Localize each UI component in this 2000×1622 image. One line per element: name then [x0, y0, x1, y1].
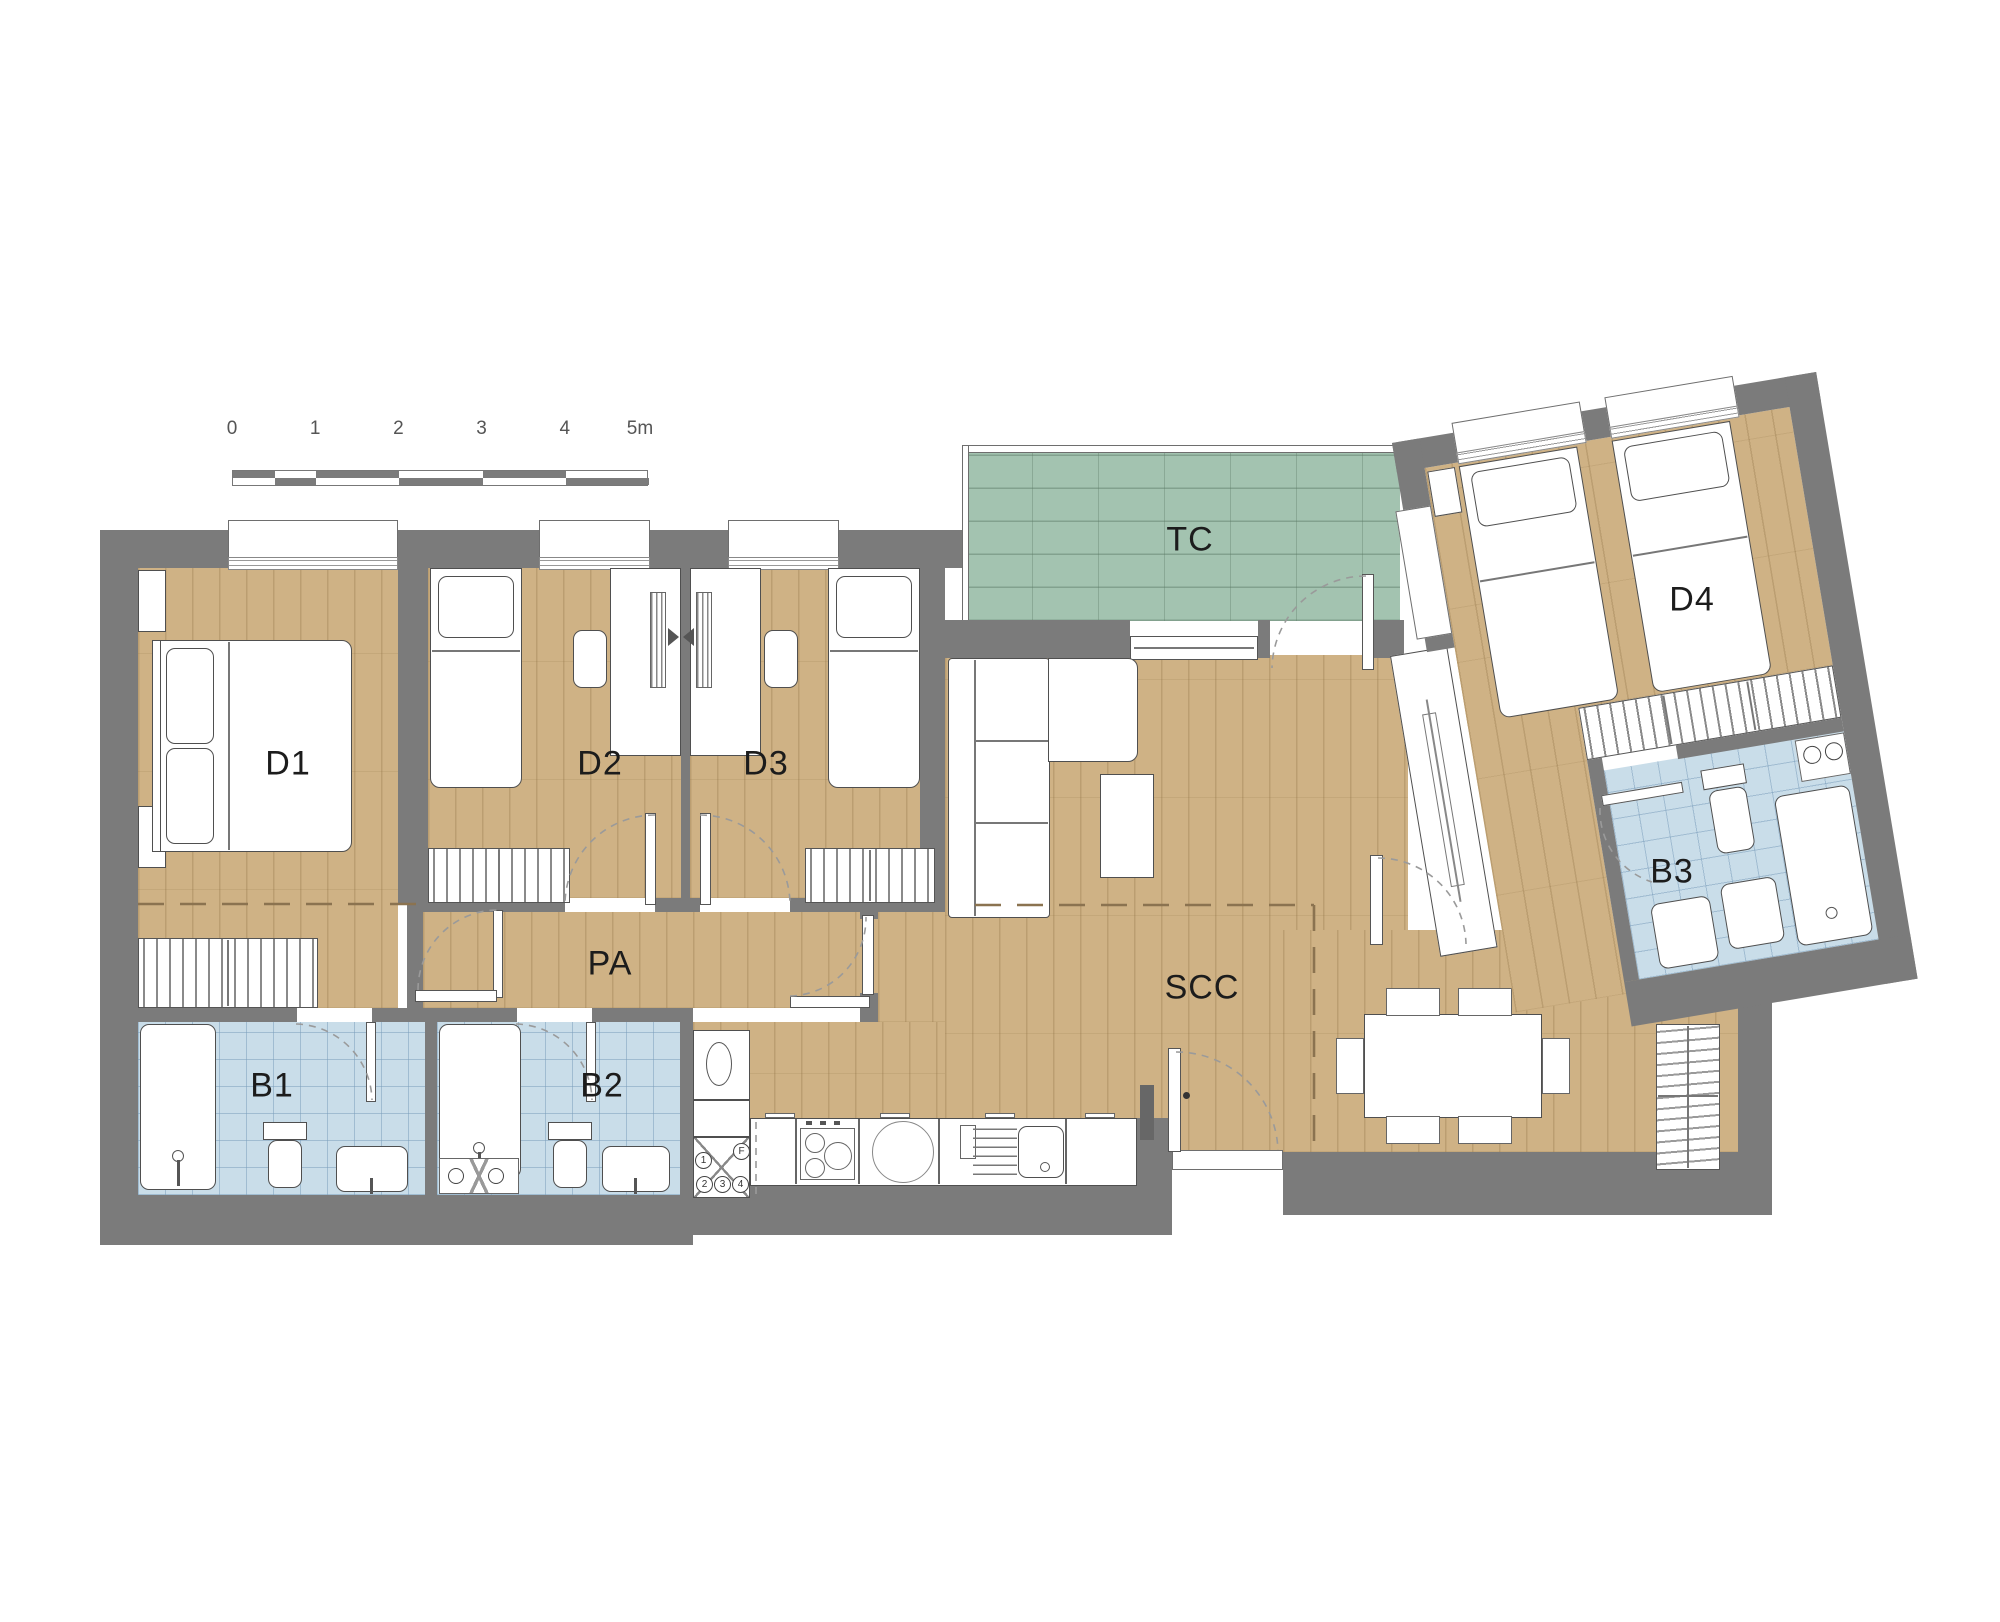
room-label-scc: SCC	[1165, 969, 1240, 1008]
b3-sink-2	[1719, 876, 1785, 950]
wall-b1-b2	[425, 1022, 437, 1195]
room-label-b3: B3	[1650, 853, 1694, 892]
cabinet-handle-1	[765, 1113, 795, 1118]
scale-tick-0: 0	[227, 418, 238, 440]
b1-sink-tap-icon	[370, 1178, 373, 1194]
hob-burner-3	[805, 1158, 825, 1178]
scale-tick-4: 4	[560, 418, 571, 440]
dining-chair-5	[1336, 1038, 1364, 1094]
b1-toilet-tank	[263, 1122, 307, 1140]
wall-tc-scc-2	[1258, 620, 1270, 658]
kitchen-symbol-2: 2	[696, 1176, 713, 1193]
tc-sliding-door-rail	[1134, 647, 1254, 649]
hob-burner-2	[824, 1142, 852, 1170]
wall-bottom-left	[100, 1195, 693, 1245]
counter-div-1	[795, 1119, 797, 1184]
d1-nightstand-top	[138, 570, 166, 632]
terrace-parapet-top	[962, 445, 1402, 453]
d1-pillow-2	[166, 748, 214, 844]
scale-tick-1: 1	[310, 418, 321, 440]
window-d2	[539, 520, 650, 560]
d3-bed-fold-line	[830, 650, 918, 652]
b3-sink-1	[1650, 895, 1720, 970]
cabinet-handle-3	[985, 1113, 1015, 1118]
hob-knobs-icon	[806, 1121, 848, 1125]
room-label-tc: TC	[1166, 521, 1213, 560]
tc-door-leaf	[1362, 574, 1374, 670]
wall-d1-d2	[398, 530, 428, 905]
d1-pillow-1	[166, 648, 214, 744]
room-label-d3: D3	[743, 745, 788, 784]
window-d1	[228, 520, 398, 560]
counter-div-4	[1065, 1119, 1067, 1184]
sink-drainer-icon	[973, 1127, 1017, 1175]
pa-left-door-leaf	[415, 990, 497, 1002]
d2-monitor	[650, 592, 666, 688]
scc-coffee-table	[1100, 774, 1154, 878]
d3-door-leaf	[700, 813, 711, 905]
scale-bar: 0 1 2 3 4 5m	[232, 440, 648, 486]
room-label-pa: PA	[588, 945, 633, 984]
wall-left	[100, 530, 138, 1245]
entry-door-handle-icon	[1183, 1092, 1190, 1099]
terrace-parapet-left	[962, 445, 969, 621]
wall-d2-d3	[681, 568, 690, 898]
wall-b2-top-2	[592, 1008, 693, 1022]
d2-bed-fold-line	[432, 650, 520, 652]
sofa-back-line	[974, 660, 976, 916]
scale-bar-body	[232, 470, 648, 486]
cabinet-handle-2	[880, 1113, 910, 1118]
sb-r2-s3	[566, 478, 649, 485]
d3-pillow	[836, 576, 912, 638]
room-label-b1: B1	[250, 1067, 294, 1106]
entry-frame-panel	[1140, 1085, 1154, 1140]
counter-div-2	[858, 1119, 860, 1184]
b1-toilet	[268, 1140, 302, 1188]
pa-left-door-leaf-open	[493, 910, 503, 998]
wall-pa-2	[655, 898, 700, 912]
d1-bed-fold-line	[228, 642, 230, 850]
scc-sofa-chaise	[1048, 658, 1138, 762]
d3-monitor-arrow-icon	[683, 628, 694, 646]
cabinet-handle-4	[1085, 1113, 1115, 1118]
wall-bottom-kitchen	[693, 1185, 1137, 1235]
room-label-d2: D2	[577, 745, 622, 784]
dining-chair-4	[1458, 1116, 1512, 1144]
sb-r1-s1	[233, 471, 275, 478]
pa-right-door-leaf	[790, 996, 870, 1008]
entry-door-opening	[1172, 1150, 1283, 1170]
d2-wardrobe-divider	[498, 850, 500, 901]
d2-door-leaf	[645, 813, 656, 905]
d3-monitor	[696, 592, 712, 688]
radiator-divider	[1687, 1026, 1689, 1168]
sink-drain-icon	[1040, 1162, 1050, 1172]
wall-b1-b2-top	[372, 1008, 517, 1022]
dining-chair-6	[1542, 1038, 1570, 1094]
sb-r1-s2	[316, 471, 399, 478]
sb-r2-s2	[399, 478, 482, 485]
water-heater-dial-icon	[448, 1168, 464, 1184]
d2-chair	[573, 630, 607, 688]
window-d1-sill	[228, 557, 398, 570]
kitchen-symbol-3: 3	[714, 1176, 731, 1193]
dining-chair-1	[1386, 988, 1440, 1016]
b1-door-leaf	[366, 1022, 376, 1102]
wall-tc-scc-1	[945, 620, 1130, 658]
kitchen-symbol-4: 4	[732, 1176, 749, 1193]
b2-toilet	[553, 1140, 587, 1188]
sofa-cushion-line-2	[976, 822, 1048, 824]
d1-wardrobe-divider	[227, 940, 229, 1006]
room-label-b2: B2	[580, 1067, 624, 1106]
wall-b1-top-1	[135, 1008, 297, 1022]
b2-toilet-tank	[548, 1122, 592, 1140]
floor-plan: 1 2 3 4 F	[0, 0, 2000, 1622]
pa-right-door-leaf-open	[862, 915, 874, 995]
hob-burner-1	[805, 1133, 825, 1153]
scale-tick-5: 5m	[627, 418, 653, 440]
wall-b2-kitchen	[680, 1022, 693, 1200]
scc-sofa	[948, 658, 1050, 918]
kitchen-round-unit	[872, 1121, 934, 1183]
wall-right	[1738, 985, 1772, 1215]
b2-sink-tap-icon	[634, 1178, 637, 1194]
d2-monitor-arrow-icon	[668, 628, 679, 646]
kitchen-washer-door-icon	[706, 1042, 732, 1086]
counter-div-3	[938, 1119, 940, 1184]
radiator-divider-2	[1658, 1095, 1718, 1097]
entry-door-leaf	[1168, 1048, 1181, 1152]
d3-wardrobe-divider	[869, 850, 871, 901]
pa-scc-passage-floor	[878, 905, 945, 1022]
sb-r2-s1	[275, 478, 317, 485]
d2-desk	[610, 568, 681, 756]
window-d3	[728, 520, 839, 560]
scale-tick-3: 3	[476, 418, 487, 440]
room-label-d4: D4	[1669, 581, 1714, 620]
d3-chair	[764, 630, 798, 688]
d2-pillow	[438, 576, 514, 638]
sb-r1-s3	[483, 471, 566, 478]
b1-tub-tap-icon	[177, 1160, 180, 1186]
d4-zone-door-leaf	[1370, 855, 1383, 945]
sofa-cushion-line-1	[976, 740, 1048, 742]
kitchen-symbol-f: F	[733, 1143, 750, 1160]
kitchen-symbol-1: 1	[695, 1152, 712, 1169]
kitchen-cabinet-tall	[693, 1100, 750, 1137]
room-label-d1: D1	[265, 745, 310, 784]
scale-tick-2: 2	[393, 418, 404, 440]
water-heater-dial-icon-2	[488, 1168, 504, 1184]
dining-chair-3	[1386, 1116, 1440, 1144]
